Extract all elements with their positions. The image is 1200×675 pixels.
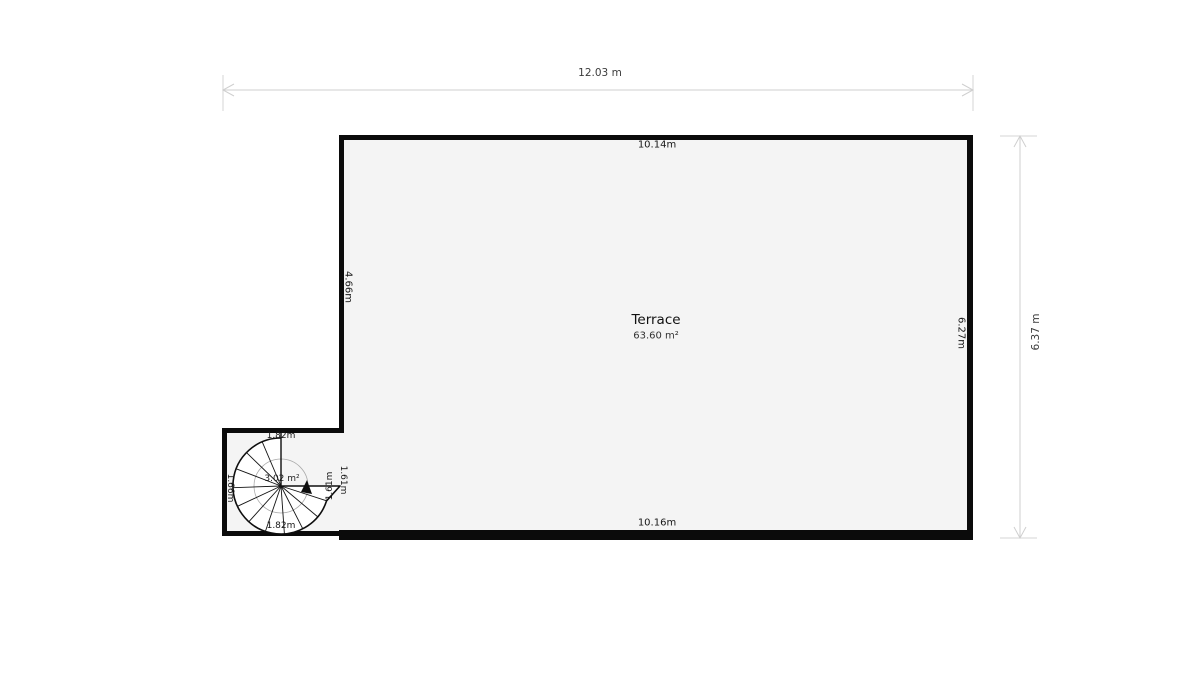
stair-room-left-dimension: 1.66m <box>225 474 235 503</box>
room-title: Terrace <box>631 312 680 328</box>
overall-height-label: 6.37 m <box>1030 314 1042 351</box>
terrace-right-dimension: 6.27m <box>956 317 967 349</box>
terrace-bottom-dimension: 10.16m <box>638 518 676 529</box>
terrace-top-dimension: 10.14m <box>638 140 676 151</box>
floor-plan-canvas: 12.03 m 6.37 m 10.14m 10.16m 4.66m 6.27m… <box>0 0 1200 675</box>
stair-room-bottom-dimension: 1.82m <box>267 521 296 531</box>
opening-inner-dimension: 1.61m <box>325 472 335 501</box>
stair-room-top-dimension: 1.82m <box>267 431 296 441</box>
terrace-wall-right <box>967 135 973 540</box>
terrace-wall-bottom <box>339 530 973 540</box>
overall-width-label: 12.03 m <box>578 67 622 79</box>
terrace-left-dimension: 4.66m <box>343 271 354 303</box>
opening-outer-dimension: 1.61m <box>338 466 348 495</box>
room-area: 63.60 m² <box>633 331 679 342</box>
